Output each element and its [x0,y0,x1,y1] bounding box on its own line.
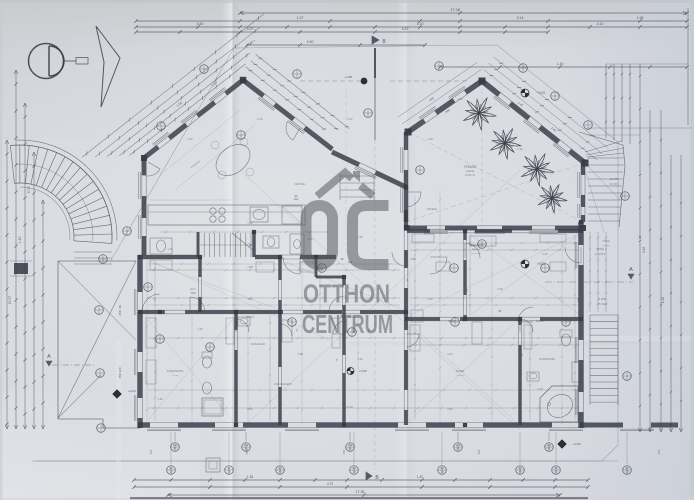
svg-text:FURDOSZOBA: FURDOSZOBA [539,358,555,361]
svg-text:1.50: 1.50 [457,97,463,101]
svg-text:3.16: 3.16 [497,287,503,291]
svg-text:1.40: 1.40 [661,297,665,303]
svg-text:150: 150 [118,310,122,315]
svg-text:7.8 m2: 7.8 m2 [172,375,179,377]
svg-text:KOZLEKEDO: KOZLEKEDO [251,343,266,346]
svg-text:1.27: 1.27 [297,16,304,20]
svg-text:1.40: 1.40 [427,137,433,141]
svg-text:1.20: 1.20 [197,327,203,331]
svg-text:11 FOK: 11 FOK [598,297,607,301]
svg-text:TERASZ: TERASZ [464,165,477,169]
svg-text:150: 150 [342,449,346,454]
svg-text:4.73: 4.73 [327,482,333,486]
svg-text:4.10: 4.10 [417,22,424,26]
svg-text:1.35: 1.35 [167,247,173,251]
svg-text:4.07: 4.07 [247,27,254,31]
svg-text:+0.00: +0.00 [128,389,136,393]
svg-text:11.07 m2: 11.07 m2 [471,253,481,255]
svg-text:1.30: 1.30 [187,137,193,141]
svg-text:120: 120 [154,337,157,342]
svg-text:150: 150 [149,449,153,454]
svg-text:2.40: 2.40 [517,147,523,151]
svg-text:NAPPALI: NAPPALI [295,182,306,186]
svg-text:1.90: 1.90 [357,235,363,239]
svg-text:A: A [639,234,642,239]
svg-text:+0.00: +0.00 [537,91,545,95]
svg-text:1.40: 1.40 [347,405,353,409]
svg-text:2.47: 2.47 [347,117,353,121]
svg-text:TER: TER [190,291,195,295]
svg-text:A: A [47,354,51,360]
svg-text:120: 120 [577,297,580,302]
svg-text:17.209.5: 17.209.5 [609,183,619,186]
svg-text:90/210: 90/210 [536,320,544,323]
svg-text:10.97: 10.97 [8,296,12,305]
svg-text:VERANDA: VERANDA [469,243,484,247]
svg-text:90/210: 90/210 [448,320,456,323]
svg-text:+0.00: +0.00 [359,369,367,373]
svg-text:OTTHON: OTTHON [303,279,390,309]
svg-text:1.88: 1.88 [247,265,253,269]
svg-text:4.02: 4.02 [447,352,453,356]
svg-text:4.50: 4.50 [197,22,204,26]
svg-text:1.50: 1.50 [427,297,433,301]
svg-text:1.40: 1.40 [410,257,416,261]
svg-text:7 FOK: 7 FOK [596,247,604,251]
svg-text:11 FOK: 11 FOK [610,177,619,181]
svg-text:4.52: 4.52 [402,27,409,31]
svg-text:17.2/29.5: 17.2/29.5 [595,253,606,256]
svg-text:1.40: 1.40 [417,475,423,479]
svg-text:+1.88: +1.88 [344,75,352,79]
svg-text:3.40: 3.40 [642,247,646,253]
svg-text:fagy.res: fagy.res [472,248,481,251]
svg-text:ELO: ELO [190,287,195,291]
svg-text:210: 210 [294,197,299,201]
svg-text:2.46: 2.46 [257,117,263,121]
svg-text:17.38: 17.38 [356,490,365,494]
svg-text:+0.00: +0.00 [573,442,581,446]
svg-text:1.30: 1.30 [542,252,548,256]
svg-text:3.14: 3.14 [517,16,524,20]
svg-text:120: 120 [118,367,122,372]
svg-text:90/210: 90/210 [246,316,254,319]
svg-text:4.10: 4.10 [597,22,604,26]
svg-text:1.98: 1.98 [637,16,644,20]
svg-text:FURDOSZOBA: FURDOSZOBA [167,370,184,373]
svg-text:burkolat: burkolat [466,170,475,173]
svg-text:150: 150 [118,373,122,378]
svg-text:A: A [629,267,633,273]
svg-text:4.50: 4.50 [307,40,314,44]
svg-text:1.40: 1.40 [247,221,253,225]
svg-text:60: 60 [118,305,122,309]
svg-text:1.38: 1.38 [247,475,253,479]
svg-text:4.50: 4.50 [447,407,453,411]
svg-text:ETKEZO: ETKEZO [427,208,437,211]
svg-text:1.30: 1.30 [537,387,543,391]
svg-text:17.38: 17.38 [450,7,461,12]
svg-text:150: 150 [657,449,661,454]
svg-text:1.35: 1.35 [157,397,163,401]
svg-text:150: 150 [477,449,481,454]
svg-text:150: 150 [245,449,249,454]
svg-text:27.86 m2: 27.86 m2 [465,174,476,177]
svg-text:CENTRUM: CENTRUM [302,309,393,339]
svg-text:FOKOZLEKEDO: FOKOZLEKEDO [274,383,292,386]
svg-text:1.40: 1.40 [18,237,22,244]
svg-text:1.40: 1.40 [557,62,564,66]
